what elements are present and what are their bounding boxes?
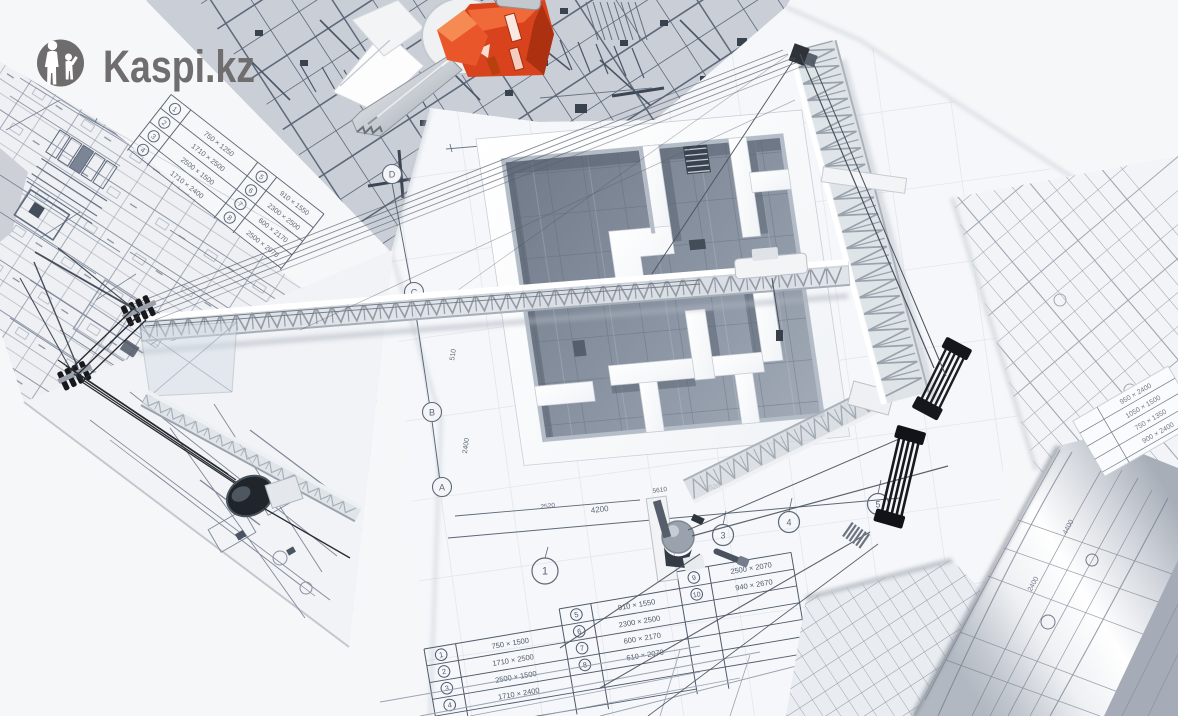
svg-text:A: A: [439, 482, 445, 492]
svg-text:D: D: [389, 169, 396, 179]
svg-text:Kaspi.kz: Kaspi.kz: [103, 41, 255, 92]
svg-text:B: B: [429, 407, 435, 417]
svg-text:5: 5: [876, 500, 881, 510]
svg-text:4: 4: [787, 518, 792, 528]
svg-text:1: 1: [542, 566, 548, 578]
svg-text:10: 10: [692, 591, 701, 599]
svg-text:3: 3: [721, 531, 726, 541]
